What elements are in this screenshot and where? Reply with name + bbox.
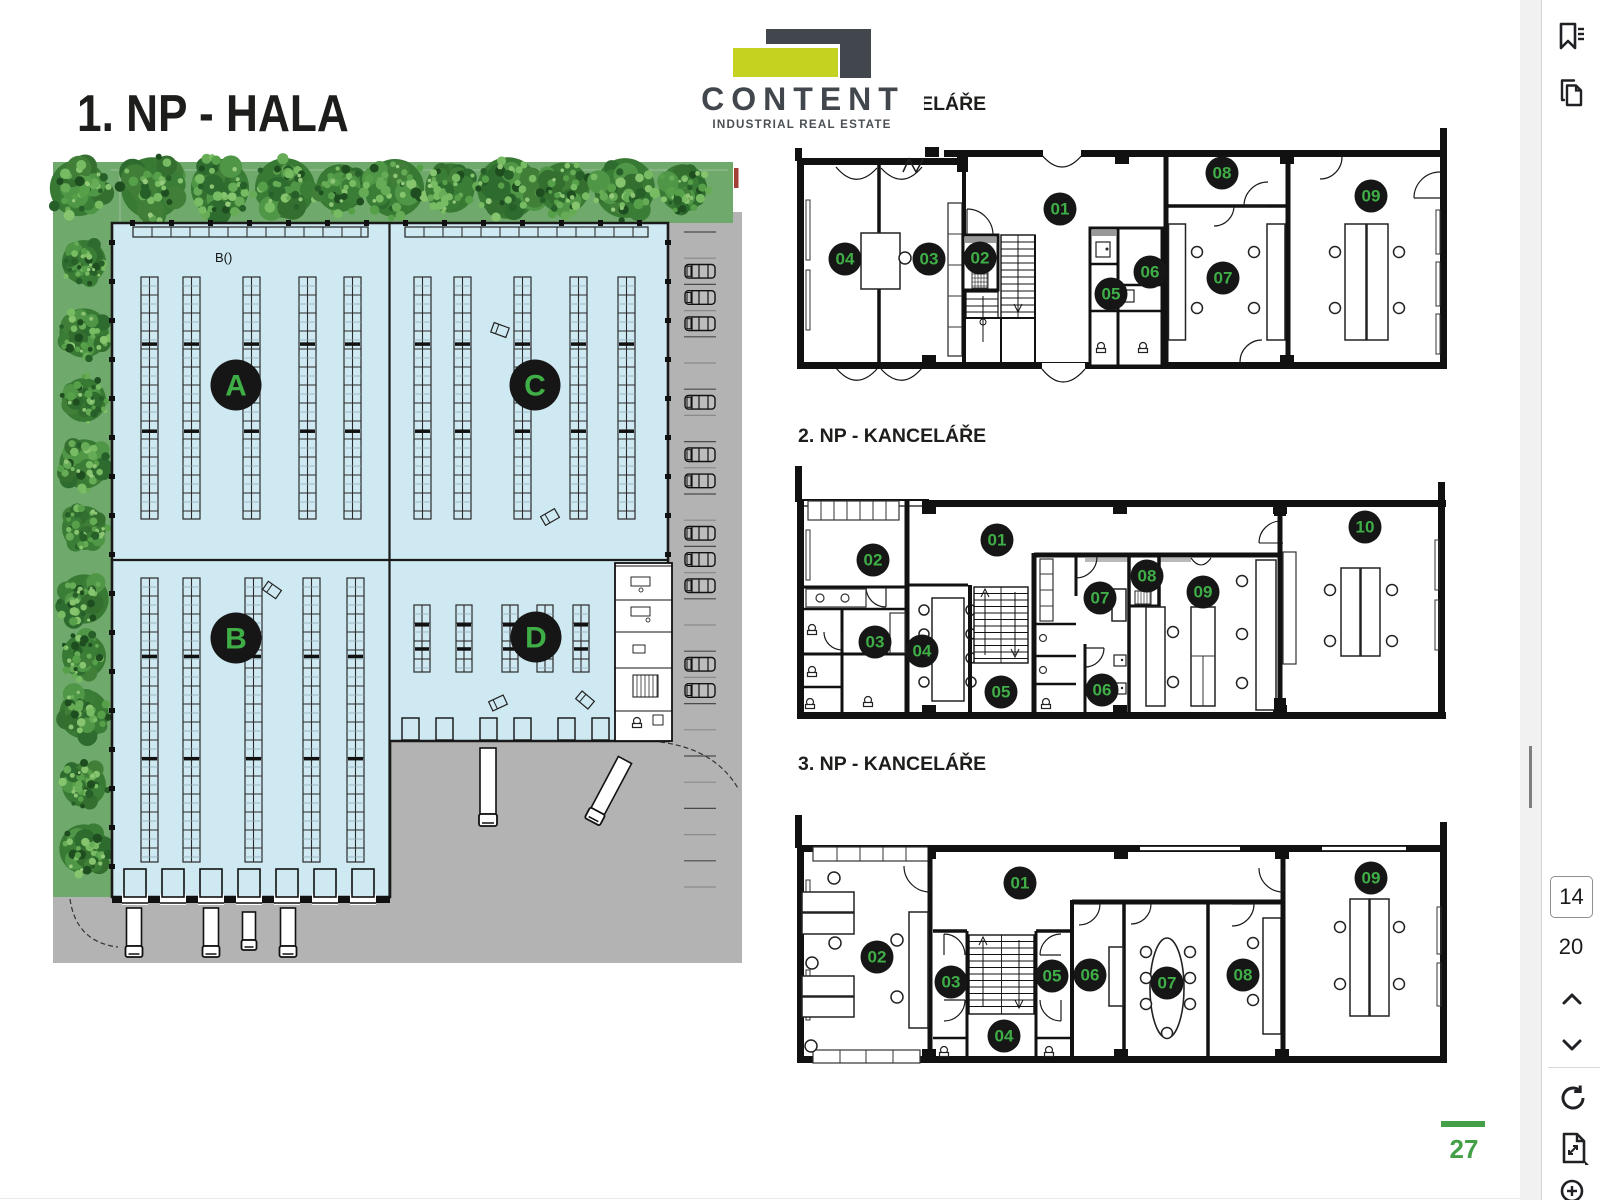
svg-text:04: 04 — [913, 642, 932, 661]
svg-text:05: 05 — [992, 683, 1011, 702]
svg-text:08: 08 — [1213, 164, 1232, 183]
svg-text:03: 03 — [942, 973, 961, 992]
svg-text:07: 07 — [1091, 589, 1110, 608]
svg-text:D: D — [525, 622, 547, 655]
svg-text:02: 02 — [971, 249, 990, 268]
svg-text:06: 06 — [1141, 263, 1160, 282]
svg-text:B(): B() — [215, 250, 232, 265]
svg-text:03: 03 — [920, 250, 939, 269]
svg-text:06: 06 — [1093, 681, 1112, 700]
svg-text:01: 01 — [1011, 874, 1030, 893]
svg-text:03: 03 — [866, 633, 885, 652]
svg-text:09: 09 — [1362, 869, 1381, 888]
svg-text:04: 04 — [995, 1027, 1014, 1046]
svg-text:07: 07 — [1158, 974, 1177, 993]
svg-text:02: 02 — [868, 948, 887, 967]
svg-text:A: A — [225, 370, 247, 403]
svg-text:02: 02 — [864, 551, 883, 570]
svg-text:05: 05 — [1043, 967, 1062, 986]
svg-text:07: 07 — [1214, 269, 1233, 288]
svg-text:C: C — [524, 370, 546, 403]
svg-text:01: 01 — [1051, 200, 1070, 219]
svg-text:CONTENT: CONTENT — [701, 81, 905, 117]
svg-text:08: 08 — [1138, 567, 1157, 586]
svg-text:B: B — [225, 623, 247, 656]
svg-text:INDUSTRIAL REAL ESTATE: INDUSTRIAL REAL ESTATE — [712, 118, 891, 131]
svg-text:10: 10 — [1356, 518, 1375, 537]
svg-text:04: 04 — [836, 250, 855, 269]
svg-text:01: 01 — [988, 531, 1007, 550]
svg-text:09: 09 — [1194, 583, 1213, 602]
svg-text:05: 05 — [1102, 285, 1121, 304]
svg-text:06: 06 — [1081, 966, 1100, 985]
svg-text:09: 09 — [1362, 187, 1381, 206]
svg-text:08: 08 — [1234, 966, 1253, 985]
